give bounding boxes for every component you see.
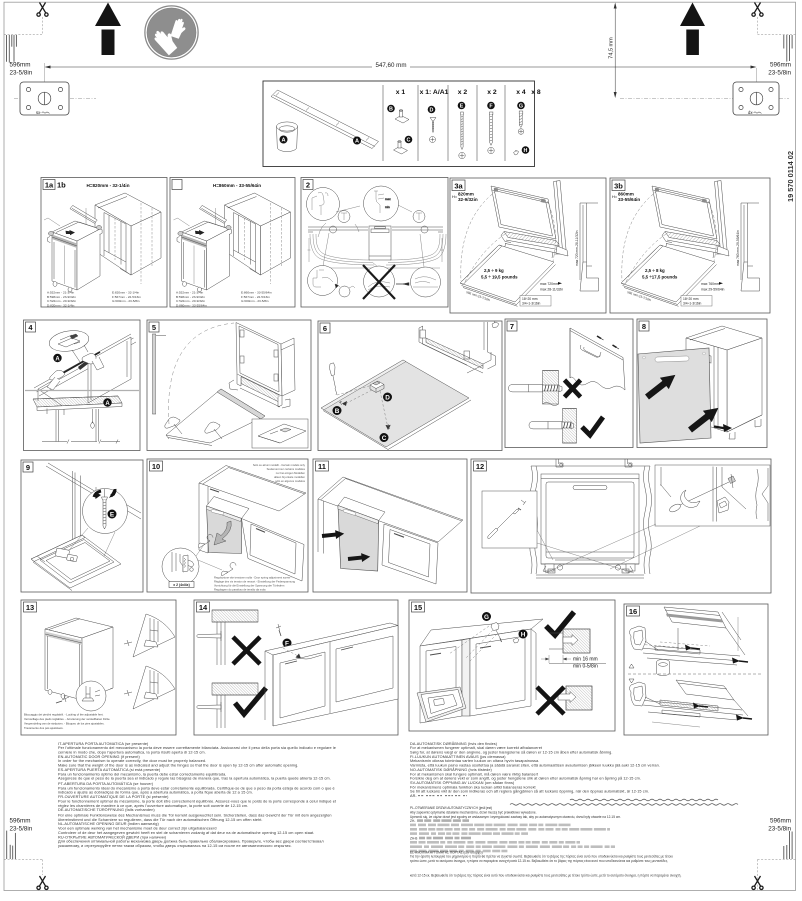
svg-text:32-9/32in: 32-9/32in [458,197,478,202]
svg-text:Solo su alcuni modelli - Certa: Solo su alcuni modelli - Certain models … [253,463,306,467]
svg-text:A: A [281,138,285,144]
svg-text:ZH-B: ZH-B [410,837,417,841]
svg-text:Vorrichtung für die Einstellun: Vorrichtung für die Einstellung der Span… [214,584,285,588]
svg-text:sx-: sx- [36,110,42,115]
svg-text:AR-: AR- [410,794,417,798]
svg-text:33-55/64in: 33-55/64in [618,197,640,202]
svg-text:min 0-5/8in: min 0-5/8in [573,664,598,670]
svg-text:1b: 1b [57,181,66,190]
svg-text:Réglage des vis tension de res: Réglage des vis tension de ressort - Ein… [214,580,295,584]
svg-text:Bloccaggio dei piedini regolab: Bloccaggio dei piedini regolabili. - Loc… [24,713,104,717]
svg-text:3a: 3a [454,182,463,191]
svg-text:H=: H= [612,194,618,199]
svg-text:10: 10 [152,462,160,471]
svg-text:κατά 12-15 εκ. Βεβαιωθείτε ότι: κατά 12-15 εκ. Βεβαιωθείτε ότι το βάρος … [410,874,681,878]
svg-text:E: E [110,512,115,519]
svg-text:3b: 3b [614,182,623,191]
svg-text:23-5/8in: 23-5/8in [10,70,33,77]
svg-text:23-5/8in: 23-5/8in [768,826,791,833]
svg-text:alleen bij enkele modellen: alleen bij enkele modellen [274,475,305,479]
svg-text:H: H [524,148,528,154]
svg-text:Asegúrese de que el peso de la: Asegúrese de que el peso de la puerta se… [58,777,331,781]
svg-text:596mm: 596mm [10,62,31,69]
svg-text:B: B [389,107,393,113]
svg-text:5,5 ÷17,5 pounds: 5,5 ÷17,5 pounds [642,275,678,280]
svg-text:6: 6 [323,324,327,333]
svg-text:A: A [355,139,359,145]
svg-text:B: B [335,408,340,415]
svg-text:596mm: 596mm [770,62,791,69]
svg-text:H=860mm - 33-55/64in: H=860mm - 33-55/64in [213,183,261,188]
svg-text:Regolazione vite tensione moll: Regolazione vite tensione molla - Door s… [214,576,292,580]
svg-text:13: 13 [26,603,34,612]
svg-text:D:820mm - 32-1/4in: D:820mm - 32-1/4in [47,303,75,307]
svg-text:x 2: x 2 [458,89,468,96]
svg-text:Seulement sur certains modèles: Seulement sur certains modèles [267,467,306,471]
svg-text:max 760mm: max 760mm [701,282,720,286]
svg-text:Vergrendeling van de stelpoten: Vergrendeling van de stelpoten. - Bloque… [24,722,105,726]
svg-text:x 4: x 4 [516,89,526,96]
svg-text:18÷20 mm: 18÷20 mm [522,297,538,301]
svg-text:5: 5 [152,323,156,332]
svg-text:19 570 0114 02: 19 570 0114 02 [786,151,795,202]
svg-text:max 28-11/32in: max 28-11/32in [540,288,563,292]
svg-text:τρόπο ώστε, μετά το αυτόματο ά: τρόπο ώστε, μετά το αυτόματο άνοιγμα, η … [410,859,668,863]
svg-text:7: 7 [510,322,514,331]
svg-text:18÷20 mm: 18÷20 mm [683,297,699,301]
svg-text:указанному, и отрегулируйте пе: указанному, и отрегулируйте петли таким … [58,844,292,848]
svg-text:3/4÷1-3/16in: 3/4÷1-3/16in [683,302,701,306]
svg-text:NO-AUTOMATISK DØRÅPNING (hvis: NO-AUTOMATISK DØRÅPNING (hvis tilstede) [410,767,493,772]
svg-text:9: 9 [26,463,30,472]
svg-text:H=: H= [452,194,458,199]
svg-text:820mm: 820mm [458,192,474,197]
svg-text:H: H [521,632,526,639]
svg-text:Regulagem do parafuso de tensã: Regulagem do parafuso de tensão da mola [214,588,266,592]
svg-text:max: max [385,197,391,201]
svg-text:3/4÷1-3/16in: 3/4÷1-3/16in [522,302,540,306]
svg-text:max 720 mm-28-11/32in: max 720 mm-28-11/32in [575,230,579,266]
svg-text:596mm: 596mm [770,818,791,825]
svg-text:11: 11 [318,462,326,471]
svg-text:DE-AUTOMATISCHE TÜRÖFFNUNG (fa: DE-AUTOMATISCHE TÜRÖFFNUNG (falls vorhan… [58,808,155,812]
svg-text:C: C [382,435,387,442]
svg-text:Se till att luckans vikt är de: Se till att luckans vikt är den som indi… [410,790,649,794]
svg-text:547,60 mm: 547,60 mm [376,62,407,69]
svg-text:x 8: x 8 [531,89,541,96]
svg-text:G:600mm - 23-5/8in: G:600mm - 23-5/8in [241,299,269,303]
svg-text:max 760 mm-29-59/64in: max 760 mm-29-59/64in [736,230,740,266]
svg-text:8: 8 [642,322,646,331]
svg-text:min 16 mm: min 16 mm [573,657,598,663]
svg-text:x 1: x 1 [396,89,406,96]
svg-text:74,5 mm: 74,5 mm [609,37,615,59]
svg-text:DA-AUTOMATISK DØRÅBNING (hvis: DA-AUTOMATISK DØRÅBNING (hvis den findes… [410,741,498,746]
svg-text:23-5/8in: 23-5/8in [10,826,33,833]
svg-text:1a: 1a [45,181,54,190]
svg-text:Verrouillage des pieds réglabl: Verrouillage des pieds réglables. - Arre… [24,717,111,721]
svg-text:Travamento dos pés ajustáveis.: Travamento dos pés ajustáveis. [24,726,64,730]
svg-text:23-5/8in: 23-5/8in [768,70,791,77]
svg-text:sólo en algunos modelos: sólo en algunos modelos [275,479,305,483]
svg-text:C: C [407,138,411,144]
svg-text:860mm: 860mm [618,192,634,197]
svg-text:E: E [460,104,464,110]
svg-text:2,5 ÷ 8 kg: 2,5 ÷ 8 kg [645,268,665,273]
svg-text:5,5 ÷ 19,5 pounds: 5,5 ÷ 19,5 pounds [481,275,518,280]
svg-text:G: G [484,614,489,621]
svg-text:D:860mm - 33-55/64in: D:860mm - 33-55/64in [176,303,207,307]
svg-text:Upewnić się, że ciężar drzwi j: Upewnić się, że ciężar drzwi jest zgodny… [410,815,621,819]
svg-text:596mm: 596mm [10,818,31,825]
svg-text:D: D [430,108,434,114]
svg-text:A: A [55,356,60,362]
svg-text:x 2 (4x/4x): x 2 (4x/4x) [173,583,189,587]
svg-text:G:600mm - 23-5/8in: G:600mm - 23-5/8in [112,299,140,303]
svg-text:14: 14 [199,603,208,612]
svg-text:x 1: A/A1: x 1: A/A1 [420,89,449,96]
svg-text:G: G [519,104,523,110]
svg-text:max 29-59/64in: max 29-59/64in [701,288,724,292]
svg-text:D: D [385,395,390,402]
svg-text:max 720mm: max 720mm [540,282,559,286]
svg-text:15: 15 [414,603,422,612]
svg-text:x 2: x 2 [487,89,497,96]
svg-text:min: min [385,205,390,209]
svg-text:nur bei einigen Modellen: nur bei einigen Modellen [276,471,306,475]
svg-text:12: 12 [476,462,484,471]
svg-text:16: 16 [629,607,637,616]
svg-text:ZH-: ZH- [410,819,415,823]
svg-text:H=820mm - 32-1/4in: H=820mm - 32-1/4in [86,183,129,188]
svg-text:dx-: dx- [748,110,754,115]
svg-text:2,5 ÷ 9 kg: 2,5 ÷ 9 kg [484,268,504,273]
svg-text:A: A [105,401,110,407]
svg-text:2: 2 [306,181,310,190]
